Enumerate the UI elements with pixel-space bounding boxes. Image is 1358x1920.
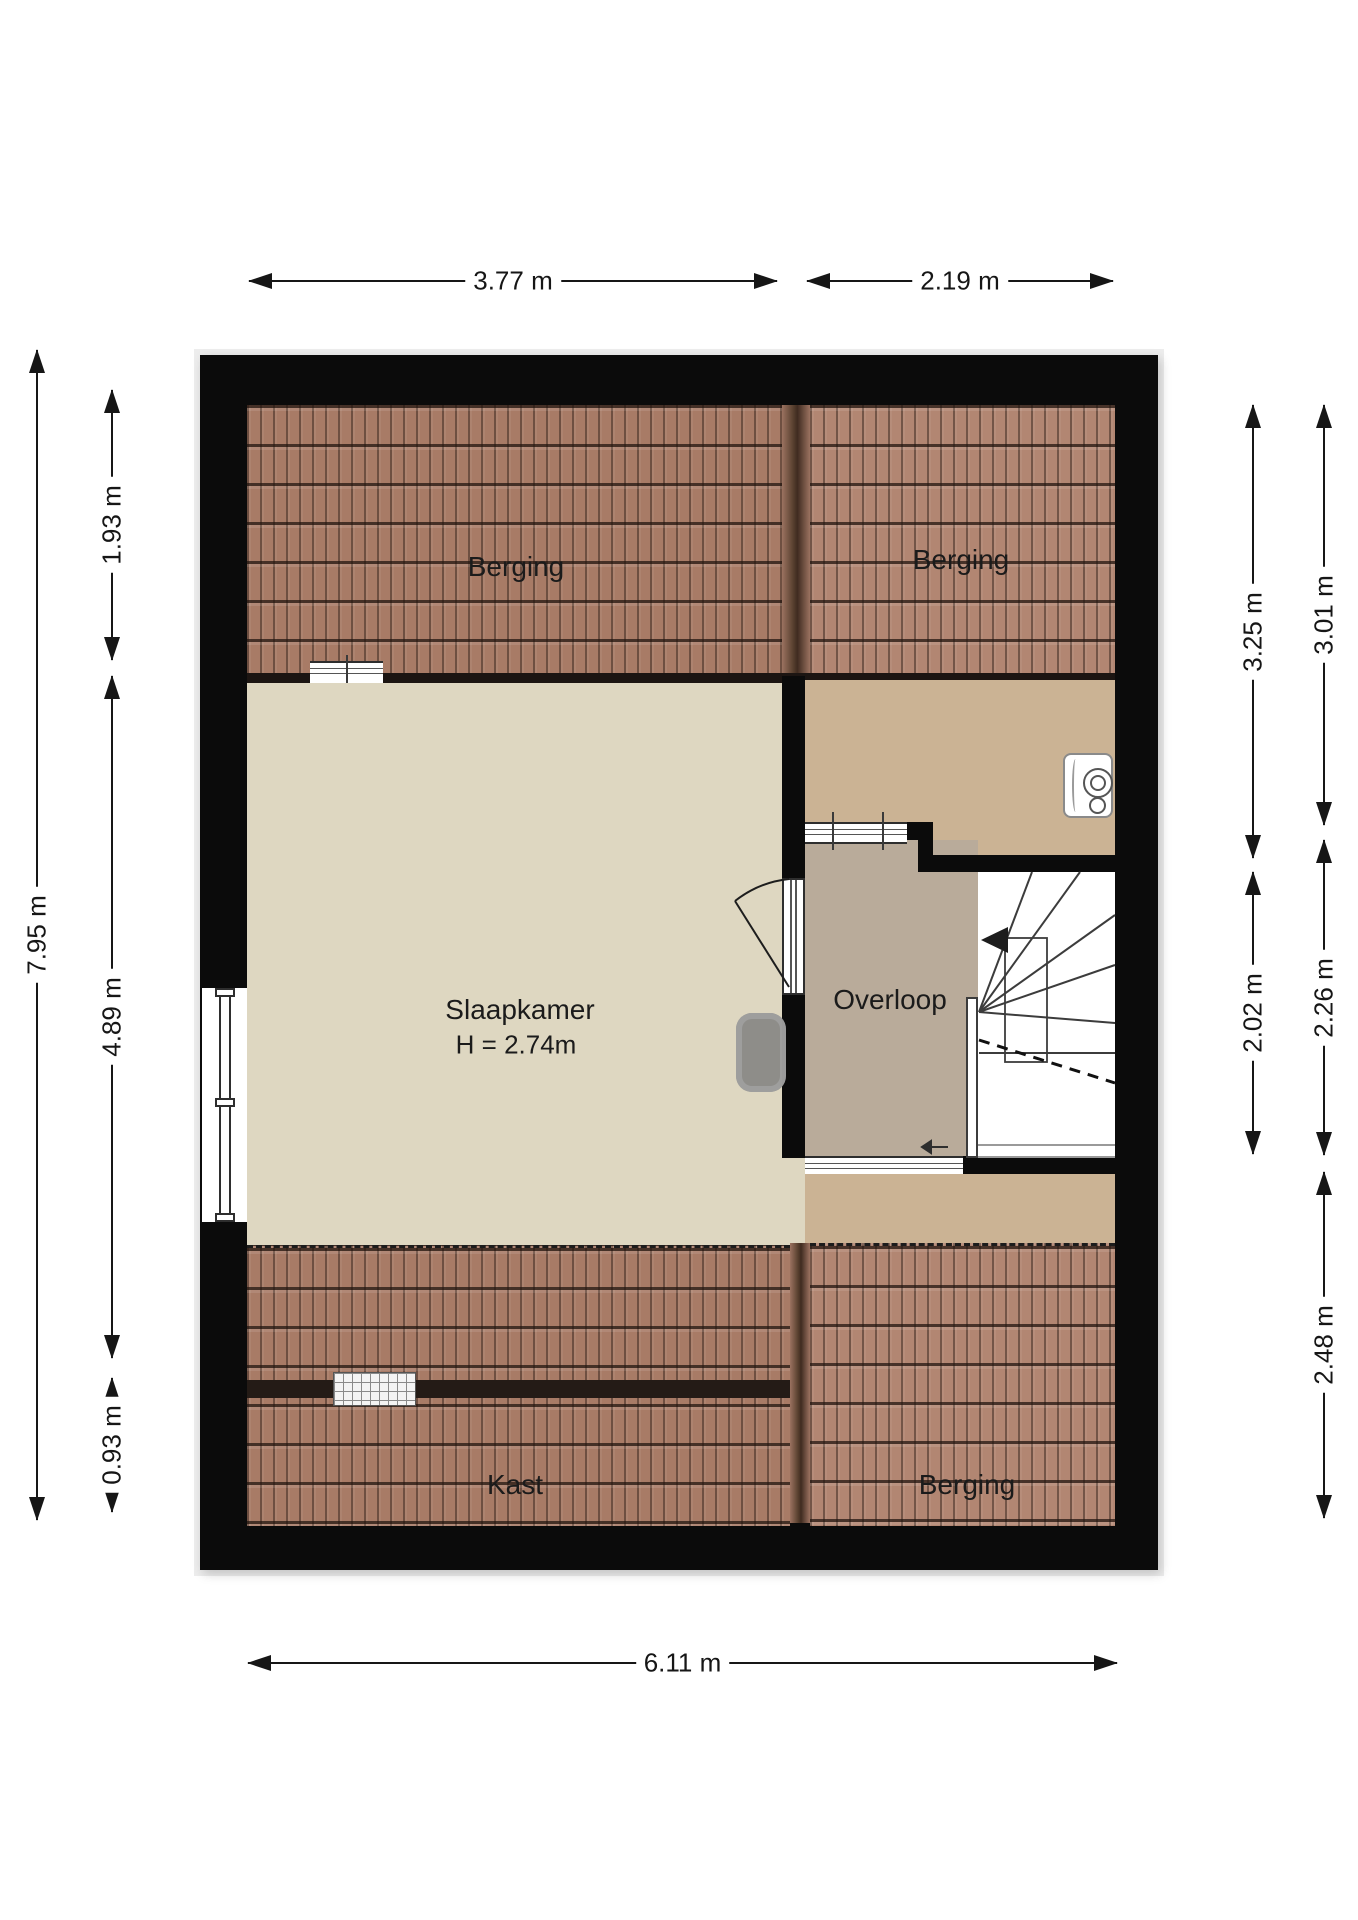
dimension-top-right-width: 2.19 m <box>807 280 1113 282</box>
dimension-right-inner-middle: 2.02 m <box>1252 872 1254 1154</box>
arrow-icon <box>29 349 45 373</box>
arrow-icon <box>29 1497 45 1521</box>
arrow-icon <box>1316 404 1332 428</box>
arrow-icon <box>1245 1131 1261 1155</box>
floorplan-page: { "title": "Attic floor plan", "rooms": … <box>0 0 1358 1920</box>
dimension-label: 2.48 m <box>1309 1297 1340 1393</box>
arrow-icon <box>1090 273 1114 289</box>
room-label-slaapkamer: Slaapkamer <box>445 994 594 1026</box>
plan-vector-details <box>200 355 1158 1570</box>
room-label-berging-top-right: Berging <box>913 544 1010 576</box>
arrow-icon <box>248 273 272 289</box>
arrow-icon <box>754 273 778 289</box>
arrow-icon <box>1316 1495 1332 1519</box>
arrow-icon <box>1316 1132 1332 1156</box>
dimension-right-outer-bottom: 2.48 m <box>1323 1172 1325 1518</box>
door-swing <box>735 879 789 987</box>
dimension-right-inner-top: 3.25 m <box>1252 405 1254 858</box>
room-label-overloop: Overloop <box>833 984 947 1016</box>
stair-bottom-edge <box>978 1145 1115 1157</box>
dimension-label: 0.93 m <box>97 1397 128 1493</box>
arrow-icon <box>1245 871 1261 895</box>
arrow-icon <box>1245 404 1261 428</box>
arrow-icon <box>1245 835 1261 859</box>
dimension-label: 4.89 m <box>97 969 128 1065</box>
arrow-icon <box>1316 802 1332 826</box>
stair-direction-arrow <box>981 927 1008 953</box>
dimension-left-middle: 4.89 m <box>111 676 113 1358</box>
room-label-berging-top-left: Berging <box>468 551 565 583</box>
arrow-icon <box>1316 1171 1332 1195</box>
floorplan-canvas: Berging Berging Slaapkamer H = 2.74m Ove… <box>200 355 1158 1570</box>
arrow-icon <box>1316 839 1332 863</box>
dimension-label: 2.02 m <box>1238 965 1269 1061</box>
dimension-label: 2.26 m <box>1309 950 1340 1046</box>
dimension-label: 3.77 m <box>465 266 561 297</box>
dimension-left-top: 1.93 m <box>111 390 113 660</box>
dimension-label: 3.25 m <box>1238 584 1269 680</box>
room-label-kast: Kast <box>487 1469 543 1501</box>
dimension-label: 3.01 m <box>1309 567 1340 663</box>
arrow-icon <box>104 389 120 413</box>
arrow-icon <box>104 675 120 699</box>
stairs <box>979 872 1115 1062</box>
dimension-label: 2.19 m <box>912 266 1008 297</box>
dimension-left-bottom: 0.93 m <box>111 1378 113 1512</box>
arrow-icon <box>1094 1655 1118 1671</box>
arrow-icon <box>104 637 120 661</box>
dimension-left-total-height: 7.95 m <box>36 350 38 1520</box>
arrow-icon <box>104 1335 120 1359</box>
dimension-label: 1.93 m <box>97 477 128 573</box>
dimension-top-left-width: 3.77 m <box>249 280 777 282</box>
dimension-label: 7.95 m <box>22 887 53 983</box>
entry-arrow <box>922 1141 948 1153</box>
room-label-slaapkamer-height: H = 2.74m <box>456 1030 577 1061</box>
dimension-label: 6.11 m <box>636 1648 730 1679</box>
dimension-right-outer-middle: 2.26 m <box>1323 840 1325 1155</box>
dimension-bottom-total-width: 6.11 m <box>248 1662 1117 1664</box>
room-label-berging-bottom: Berging <box>919 1469 1016 1501</box>
arrow-icon <box>247 1655 271 1671</box>
dimension-right-outer-top: 3.01 m <box>1323 405 1325 825</box>
arrow-icon <box>806 273 830 289</box>
